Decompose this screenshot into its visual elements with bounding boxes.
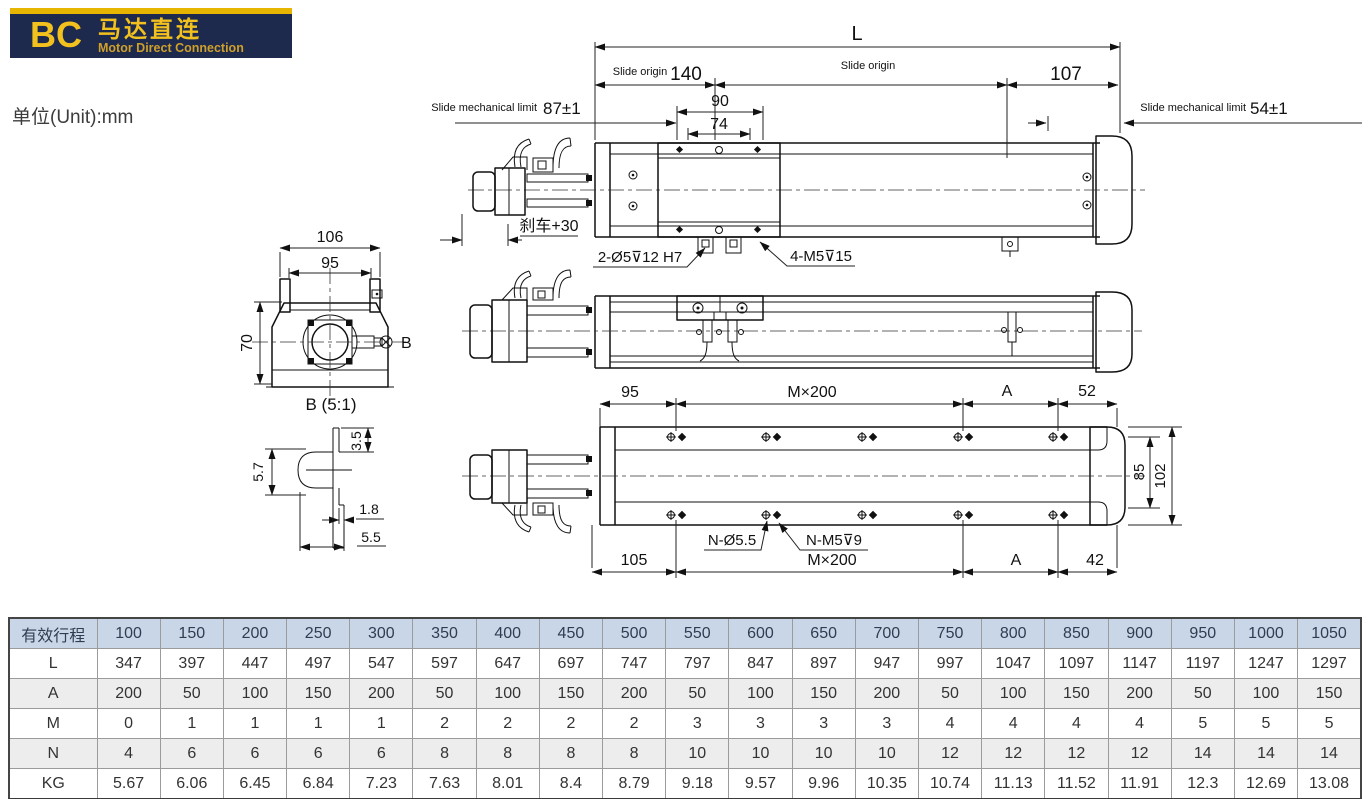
spec-cell: 6.45 — [223, 769, 286, 799]
spec-row-label: KG — [9, 769, 97, 799]
dim-90-label: 90 — [711, 93, 729, 110]
technical-drawing: L Slide origin 140 Slide origin 107 90 7… — [0, 0, 1370, 617]
spec-cell: 2 — [603, 709, 666, 739]
spec-cell: 697 — [539, 649, 602, 679]
spec-cell: 9.18 — [666, 769, 729, 799]
spec-cell: 6 — [287, 739, 350, 769]
dim-105-label: 105 — [621, 552, 648, 569]
slide-origin-right-label: Slide origin — [841, 60, 895, 72]
dim-a-bottom-label: A — [1011, 552, 1022, 569]
spec-cell: 6 — [223, 739, 286, 769]
spec-cell: 11.91 — [1108, 769, 1171, 799]
spec-cell: 5.67 — [97, 769, 160, 799]
spec-cell: 2 — [539, 709, 602, 739]
spec-cell: 100 — [1234, 679, 1297, 709]
spec-header-cell: 1000 — [1234, 618, 1297, 649]
spec-cell: 6 — [160, 739, 223, 769]
spec-cell: 12.69 — [1234, 769, 1297, 799]
dim-52-label: 52 — [1078, 383, 1096, 400]
dim-140-label: 140 — [670, 64, 702, 85]
spec-row-l: L347397447497547597647697747797847897947… — [9, 649, 1361, 679]
side-view-drawing — [462, 270, 1142, 372]
spec-header-cell: 1050 — [1298, 618, 1361, 649]
dim-m200-top-label: M×200 — [787, 384, 836, 401]
spec-cell: 1297 — [1298, 649, 1361, 679]
spec-cell: 150 — [1045, 679, 1108, 709]
spec-row-label: A — [9, 679, 97, 709]
detail-b-marker: B — [401, 335, 412, 352]
spec-cell: 5 — [1171, 709, 1234, 739]
spec-cell: 10.35 — [855, 769, 918, 799]
spec-cell: 8 — [539, 739, 602, 769]
dim-70-label: 70 — [239, 334, 256, 352]
callout-through-holes: N-Ø5.5 — [708, 532, 756, 549]
spec-cell: 12 — [1108, 739, 1171, 769]
spec-header-cell: 650 — [792, 618, 855, 649]
spec-cell: 150 — [539, 679, 602, 709]
dim-107-label: 107 — [1050, 64, 1082, 85]
spec-cell: 9.57 — [729, 769, 792, 799]
top-view-drawing: L Slide origin 140 Slide origin 107 90 7… — [431, 23, 1362, 267]
spec-cell: 12 — [918, 739, 981, 769]
spec-cell: 3 — [792, 709, 855, 739]
slide-limit-right-value: 54±1 — [1250, 99, 1288, 118]
spec-cell: 4 — [97, 739, 160, 769]
spec-header-cell: 550 — [666, 618, 729, 649]
spec-cell: 447 — [223, 649, 286, 679]
spec-cell: 9.96 — [792, 769, 855, 799]
spec-header-row: 有效行程100150200250300350400450500550600650… — [9, 618, 1361, 649]
spec-cell: 1 — [287, 709, 350, 739]
slide-limit-right-label: Slide mechanical limit — [1140, 102, 1246, 114]
spec-cell: 947 — [855, 649, 918, 679]
spec-row-kg: KG5.676.066.456.847.237.638.018.48.799.1… — [9, 769, 1361, 799]
spec-cell: 897 — [792, 649, 855, 679]
spec-cell: 50 — [666, 679, 729, 709]
callout-dowel-holes: 2-Ø5⊽12 H7 — [598, 249, 682, 266]
spec-cell: 597 — [413, 649, 476, 679]
callout-tapped-holes: N-M5⊽9 — [806, 532, 862, 549]
spec-row-label: L — [9, 649, 97, 679]
spec-cell: 100 — [223, 679, 286, 709]
spec-header-stroke: 有效行程 — [9, 618, 97, 649]
spec-cell: 8.4 — [539, 769, 602, 799]
spec-cell: 3 — [729, 709, 792, 739]
spec-cell: 8.01 — [476, 769, 539, 799]
dim-42-label: 42 — [1086, 552, 1104, 569]
spec-header-cell: 300 — [350, 618, 413, 649]
spec-cell: 1097 — [1045, 649, 1108, 679]
spec-cell: 10 — [792, 739, 855, 769]
dim-a-top-label: A — [1002, 383, 1013, 400]
spec-cell: 797 — [666, 649, 729, 679]
spec-cell: 200 — [1108, 679, 1171, 709]
spec-cell: 11.52 — [1045, 769, 1108, 799]
dim-L-label: L — [851, 23, 862, 45]
spec-cell: 10 — [666, 739, 729, 769]
spec-cell: 50 — [918, 679, 981, 709]
spec-cell: 0 — [97, 709, 160, 739]
detail-b-drawing: B (5:1) 3.5 5.7 1.8 5.5 — [250, 395, 386, 551]
spec-cell: 50 — [1171, 679, 1234, 709]
dim-85-label: 85 — [1131, 464, 1148, 481]
spec-cell: 12.3 — [1171, 769, 1234, 799]
slide-origin-left-label: Slide origin — [613, 66, 667, 78]
spec-cell: 497 — [287, 649, 350, 679]
spec-cell: 5 — [1234, 709, 1297, 739]
spec-cell: 4 — [1045, 709, 1108, 739]
spec-cell: 1 — [350, 709, 413, 739]
bottom-view-drawing: 95 M×200 A 52 105 M×200 A 42 N-Ø5.5 N-M5… — [462, 383, 1182, 578]
spec-cell: 747 — [603, 649, 666, 679]
spec-cell: 347 — [97, 649, 160, 679]
spec-cell: 12 — [1045, 739, 1108, 769]
spec-cell: 7.23 — [350, 769, 413, 799]
spec-cell: 50 — [160, 679, 223, 709]
spec-cell: 547 — [350, 649, 413, 679]
spec-cell: 10 — [729, 739, 792, 769]
spec-cell: 200 — [97, 679, 160, 709]
spec-cell: 50 — [413, 679, 476, 709]
spec-header-cell: 800 — [982, 618, 1045, 649]
spec-cell: 150 — [1298, 679, 1361, 709]
spec-cell: 10 — [855, 739, 918, 769]
spec-cell: 8 — [476, 739, 539, 769]
spec-cell: 2 — [476, 709, 539, 739]
dim-5-7-label: 5.7 — [250, 462, 266, 482]
spec-cell: 100 — [476, 679, 539, 709]
spec-header-cell: 250 — [287, 618, 350, 649]
spec-table: 有效行程100150200250300350400450500550600650… — [8, 617, 1362, 797]
spec-row-a: A200501001502005010015020050100150200501… — [9, 679, 1361, 709]
spec-cell: 1 — [160, 709, 223, 739]
dim-74-label: 74 — [710, 116, 728, 133]
spec-cell: 4 — [982, 709, 1045, 739]
spec-header-cell: 500 — [603, 618, 666, 649]
spec-cell: 14 — [1234, 739, 1297, 769]
spec-header-cell: 150 — [160, 618, 223, 649]
spec-row-m: M01111222233334444555 — [9, 709, 1361, 739]
spec-cell: 12 — [982, 739, 1045, 769]
spec-header-cell: 350 — [413, 618, 476, 649]
spec-row-n: N4666688881010101012121212141414 — [9, 739, 1361, 769]
spec-cell: 997 — [918, 649, 981, 679]
spec-row-label: M — [9, 709, 97, 739]
slide-limit-left-value: 87±1 — [543, 99, 581, 118]
spec-cell: 6.06 — [160, 769, 223, 799]
callout-tap-holes: 4-M5⊽15 — [790, 248, 852, 265]
spec-header-cell: 900 — [1108, 618, 1171, 649]
spec-header-cell: 200 — [223, 618, 286, 649]
spec-cell: 100 — [729, 679, 792, 709]
spec-header-cell: 950 — [1171, 618, 1234, 649]
spec-cell: 14 — [1298, 739, 1361, 769]
dim-102-label: 102 — [1152, 463, 1169, 488]
spec-header-cell: 700 — [855, 618, 918, 649]
spec-cell: 8 — [603, 739, 666, 769]
spec-cell: 14 — [1171, 739, 1234, 769]
spec-cell: 397 — [160, 649, 223, 679]
spec-cell: 13.08 — [1298, 769, 1361, 799]
dim-5-5-label: 5.5 — [361, 529, 381, 545]
spec-cell: 1 — [223, 709, 286, 739]
datasheet-page: BC 马达直连 Motor Direct Connection 单位(Unit)… — [0, 0, 1370, 799]
spec-row-label: N — [9, 739, 97, 769]
spec-cell: 10.74 — [918, 769, 981, 799]
dim-106-label: 106 — [317, 229, 344, 246]
spec-cell: 8.79 — [603, 769, 666, 799]
spec-cell: 2 — [413, 709, 476, 739]
spec-cell: 150 — [792, 679, 855, 709]
spec-cell: 1197 — [1171, 649, 1234, 679]
spec-cell: 7.63 — [413, 769, 476, 799]
spec-header-cell: 750 — [918, 618, 981, 649]
slide-limit-left-label: Slide mechanical limit — [431, 102, 537, 114]
section-view-drawing: B 106 95 70 — [239, 229, 412, 402]
dim-1-8-label: 1.8 — [359, 501, 379, 517]
spec-cell: 200 — [603, 679, 666, 709]
spec-cell: 4 — [1108, 709, 1171, 739]
spec-header-cell: 850 — [1045, 618, 1108, 649]
spec-cell: 4 — [918, 709, 981, 739]
spec-cell: 1047 — [982, 649, 1045, 679]
dim-95-bottomview-label: 95 — [621, 384, 639, 401]
dim-3-5-label: 3.5 — [348, 431, 364, 451]
spec-cell: 1147 — [1108, 649, 1171, 679]
spec-header-cell: 100 — [97, 618, 160, 649]
spec-cell: 200 — [855, 679, 918, 709]
spec-cell: 11.13 — [982, 769, 1045, 799]
spec-cell: 8 — [413, 739, 476, 769]
spec-cell: 6.84 — [287, 769, 350, 799]
spec-cell: 6 — [350, 739, 413, 769]
spec-cell: 150 — [287, 679, 350, 709]
spec-header-cell: 400 — [476, 618, 539, 649]
spec-cell: 100 — [982, 679, 1045, 709]
spec-cell: 3 — [666, 709, 729, 739]
spec-cell: 5 — [1298, 709, 1361, 739]
spec-cell: 200 — [350, 679, 413, 709]
detail-b-title: B (5:1) — [305, 395, 356, 414]
spec-cell: 647 — [476, 649, 539, 679]
dim-95-section-label: 95 — [321, 255, 339, 272]
brake-label: 刹车+30 — [519, 217, 578, 235]
spec-cell: 847 — [729, 649, 792, 679]
dim-m200-bottom-label: M×200 — [807, 552, 856, 569]
spec-header-cell: 600 — [729, 618, 792, 649]
spec-header-cell: 450 — [539, 618, 602, 649]
spec-cell: 3 — [855, 709, 918, 739]
spec-cell: 1247 — [1234, 649, 1297, 679]
